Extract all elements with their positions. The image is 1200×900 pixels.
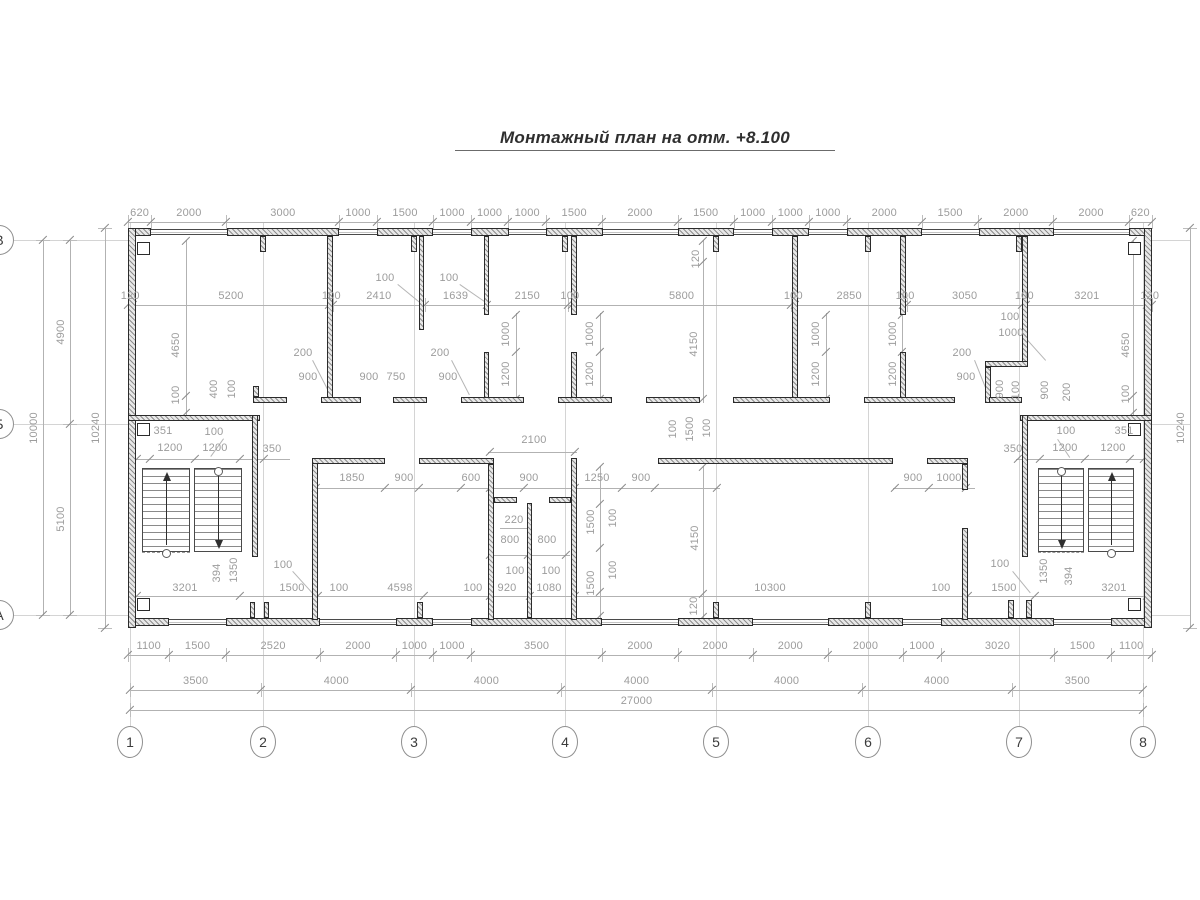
dimension-label: 1000 — [500, 321, 512, 346]
wall-segment — [678, 228, 734, 236]
dimension-label: 4650 — [170, 332, 182, 357]
row-axis-bubble: В — [0, 225, 14, 255]
wall-segment — [321, 397, 361, 403]
wall-segment — [250, 602, 255, 618]
wall-segment — [733, 397, 830, 403]
dimension-label: 1500 — [585, 570, 597, 595]
wall-segment — [253, 397, 287, 403]
dimension-label: 1000 — [515, 207, 540, 219]
dimension-chain-line — [130, 710, 1143, 711]
wall-segment — [411, 236, 417, 252]
wall-segment — [327, 236, 333, 403]
wall-segment — [713, 236, 719, 252]
dimension-label: 2520 — [260, 640, 285, 652]
dimension-label: 1000 — [778, 207, 803, 219]
dimension-label: 1250 — [584, 472, 609, 484]
dimension-label: 100 — [560, 290, 579, 302]
dimension-label: 900 — [1039, 381, 1051, 400]
dimension-line — [516, 313, 517, 403]
dimension-label: 1000 — [936, 472, 961, 484]
dimension-label: 3201 — [1074, 290, 1099, 302]
dimension-label: 1000 — [815, 207, 840, 219]
dimension-line — [703, 240, 704, 403]
dimension-label: 100 — [1001, 311, 1020, 323]
stair-travel-line — [1111, 476, 1112, 545]
dimension-label: 1000 — [439, 640, 464, 652]
dimension-label: 2000 — [853, 640, 878, 652]
dimension-label: 100 — [542, 565, 561, 577]
dimension-label: 200 — [431, 347, 450, 359]
dimension-line — [600, 313, 601, 403]
dimension-label: 4900 — [55, 319, 67, 344]
dimension-label: 5100 — [55, 507, 67, 532]
dimension-label: 1850 — [339, 472, 364, 484]
dimension-label: 1100 — [136, 640, 160, 652]
dimension-label: 100 — [896, 290, 915, 302]
dimension-chain-line — [105, 228, 106, 628]
wall-niche — [137, 423, 150, 436]
dimension-label: 5200 — [218, 290, 243, 302]
column-axis-bubble: 1 — [117, 726, 143, 758]
dimension-chain-line — [128, 655, 1152, 656]
dimension-label: 351 — [1115, 425, 1134, 437]
dimension-label: 4000 — [924, 675, 949, 687]
dimension-label: 3201 — [1101, 582, 1126, 594]
dimension-label: 4000 — [474, 675, 499, 687]
dimension-label: 3000 — [270, 207, 295, 219]
window-symbol — [433, 619, 471, 625]
wall-segment — [900, 352, 906, 403]
dimension-label: 1500 — [684, 416, 696, 441]
dimension-label: 1200 — [202, 442, 227, 454]
dimension-label: 750 — [387, 371, 406, 383]
dimension-label: 2000 — [1003, 207, 1028, 219]
wall-segment — [484, 352, 489, 403]
dimension-label: 1500 — [693, 207, 718, 219]
wall-segment — [658, 458, 893, 464]
dimension-label: 100 — [376, 272, 395, 284]
wall-segment — [488, 464, 494, 620]
dimension-label: 100 — [205, 426, 224, 438]
dimension-label: 900 — [360, 371, 379, 383]
dimension-label: 1500 — [937, 207, 962, 219]
window-symbol — [433, 229, 471, 235]
dimension-label: 800 — [538, 534, 557, 546]
wall-segment — [713, 602, 719, 618]
dimension-label: 100 — [1120, 385, 1132, 404]
wall-segment — [546, 228, 603, 236]
dimension-label: 120 — [121, 290, 140, 302]
dimension-label: 200 — [1061, 383, 1073, 402]
dimension-label: 1500 — [585, 509, 597, 534]
wall-segment — [260, 236, 266, 252]
window-symbol — [509, 229, 546, 235]
dimension-label: 394 — [211, 564, 223, 583]
window-symbol — [903, 619, 941, 625]
dimension-label: 1500 — [991, 582, 1016, 594]
dimension-chain-line — [128, 222, 1152, 223]
dimension-chain-line — [130, 690, 1143, 691]
wall-segment — [962, 528, 968, 620]
wall-segment — [227, 228, 339, 236]
dimension-label: 120 — [690, 250, 702, 269]
dimension-label: 100 — [440, 272, 459, 284]
dimension-label: 3201 — [172, 582, 197, 594]
dimension-label: 220 — [505, 514, 524, 526]
column-axis-bubble: 8 — [1130, 726, 1156, 758]
dimension-line — [313, 488, 720, 489]
dimension-label: 2150 — [515, 290, 540, 302]
dimension-label: 900 — [299, 371, 318, 383]
dimension-label: 4000 — [774, 675, 799, 687]
dimension-chain-line — [128, 305, 1152, 306]
stair-travel-line — [1061, 476, 1062, 545]
dimension-label: 4000 — [324, 675, 349, 687]
wall-niche — [1128, 598, 1141, 611]
wall-segment — [772, 228, 809, 236]
window-symbol — [602, 619, 678, 625]
leader-line — [1027, 340, 1046, 361]
dimension-label: 200 — [294, 347, 313, 359]
dimension-label: 120 — [688, 597, 700, 616]
dimension-label: 3500 — [1065, 675, 1090, 687]
dimension-label: 2000 — [703, 640, 728, 652]
stair-direction-arrow — [1108, 472, 1116, 481]
dimension-label: 1000 — [439, 207, 464, 219]
dimension-label: 1200 — [1052, 442, 1077, 454]
dimension-label: 900 — [994, 380, 1006, 399]
dimension-label: 351 — [154, 425, 173, 437]
dimension-label: 100 — [607, 561, 619, 580]
wall-niche — [137, 598, 150, 611]
dimension-label: 1350 — [228, 557, 240, 582]
drawing-title: Монтажный план на отм. +8.100 — [455, 128, 835, 151]
row-axis-line — [1152, 615, 1190, 616]
wall-segment — [461, 397, 524, 403]
dimension-label: 1000 — [345, 207, 370, 219]
dimension-label: 1500 — [185, 640, 210, 652]
dimension-label: 1639 — [443, 290, 468, 302]
dimension-label: 100 — [170, 386, 182, 405]
wall-segment — [1026, 600, 1032, 618]
column-axis-bubble: 2 — [250, 726, 276, 758]
wall-segment — [396, 618, 433, 626]
wall-segment — [312, 458, 318, 620]
dimension-label: 2410 — [366, 290, 391, 302]
dimension-label: 900 — [395, 472, 414, 484]
wall-segment — [527, 503, 532, 618]
dimension-label: 2000 — [872, 207, 897, 219]
dimension-label: 5800 — [669, 290, 694, 302]
stair-direction-arrow — [215, 540, 223, 549]
dimension-label: 600 — [462, 472, 481, 484]
stair-travel-line — [166, 476, 167, 545]
wall-segment — [264, 602, 269, 618]
dimension-label: 100 — [1015, 290, 1034, 302]
dimension-chain-line — [1190, 228, 1191, 628]
dimension-label: 4650 — [1120, 332, 1132, 357]
dimension-label: 100 — [464, 582, 483, 594]
dimension-line — [600, 466, 601, 618]
dimension-label: 100 — [607, 509, 619, 528]
dimension-label: 920 — [498, 582, 517, 594]
wall-segment — [419, 458, 494, 464]
dimension-label: 2000 — [778, 640, 803, 652]
dimension-label: 900 — [520, 472, 539, 484]
dimension-label: 100 — [784, 290, 803, 302]
dimension-label: 2000 — [345, 640, 370, 652]
dimension-label: 1200 — [584, 361, 596, 386]
stair-direction-arrow — [163, 472, 171, 481]
dimension-label: 1000 — [810, 321, 822, 346]
dimension-label: 1000 — [402, 640, 427, 652]
dimension-label: 2000 — [1078, 207, 1103, 219]
dimension-label: 1100 — [1119, 640, 1143, 652]
wall-segment — [1144, 228, 1152, 628]
column-axis-bubble: 7 — [1006, 726, 1032, 758]
dimension-label: 4150 — [689, 525, 701, 550]
wall-segment — [828, 618, 903, 626]
wall-segment — [226, 618, 320, 626]
dimension-label: 1000 — [584, 321, 596, 346]
floor-plan-canvas: Монтажный план на отм. +8.100 6202000300… — [0, 0, 1200, 900]
wall-segment — [377, 228, 433, 236]
dimension-label: 1080 — [536, 582, 561, 594]
dimension-label: 2000 — [176, 207, 201, 219]
dimension-label: 2850 — [837, 290, 862, 302]
dimension-line — [136, 459, 290, 460]
dimension-label: 620 — [130, 207, 149, 219]
dimension-label: 350 — [1004, 443, 1023, 455]
dimension-chain-line — [43, 240, 44, 615]
window-symbol — [603, 229, 678, 235]
dimension-label: 1000 — [740, 207, 765, 219]
dimension-label: 900 — [632, 472, 651, 484]
dimension-label: 1000 — [998, 327, 1023, 339]
window-symbol — [922, 229, 979, 235]
dimension-label: 800 — [501, 534, 520, 546]
stair-start-circle — [1057, 467, 1066, 476]
dimension-label: 10300 — [754, 582, 786, 594]
wall-segment — [417, 602, 423, 618]
dimension-label: 10000 — [28, 412, 40, 444]
dimension-line — [136, 596, 1148, 597]
wall-segment — [393, 397, 427, 403]
dimension-line — [703, 466, 704, 618]
wall-segment — [678, 618, 753, 626]
dimension-label: 1000 — [909, 640, 934, 652]
dimension-label: 200 — [953, 347, 972, 359]
dimension-label: 1200 — [500, 361, 512, 386]
wall-segment — [571, 352, 577, 403]
dimension-label: 2000 — [627, 207, 652, 219]
wall-segment — [494, 497, 517, 503]
dimension-label: 100 — [330, 582, 349, 594]
dimension-label: 400 — [208, 380, 220, 399]
dimension-label: 1500 — [392, 207, 417, 219]
dimension-label: 10240 — [1175, 412, 1187, 444]
landing-break-line — [1038, 552, 1084, 553]
dimension-line — [488, 452, 577, 453]
dimension-label: 1500 — [1070, 640, 1095, 652]
dimension-line — [500, 528, 528, 529]
window-symbol — [169, 619, 226, 625]
wall-segment — [985, 361, 1028, 367]
leader-line — [397, 284, 420, 303]
window-symbol — [320, 619, 396, 625]
wall-segment — [962, 464, 968, 490]
wall-segment — [549, 497, 571, 503]
wall-segment — [792, 236, 798, 403]
dimension-label: 1000 — [887, 321, 899, 346]
window-symbol — [753, 619, 828, 625]
wall-segment — [128, 415, 260, 421]
dimension-label: 100 — [667, 420, 679, 439]
dimension-label: 4000 — [624, 675, 649, 687]
dimension-label: 3050 — [952, 290, 977, 302]
dimension-label: 350 — [263, 443, 282, 455]
dimension-label: 100 — [991, 558, 1010, 570]
dimension-label: 100 — [322, 290, 341, 302]
wall-segment — [1016, 236, 1022, 252]
window-symbol — [809, 229, 847, 235]
row-axis-bubble: А — [0, 600, 14, 630]
dimension-label: 4150 — [688, 331, 700, 356]
dimension-label: 394 — [1063, 567, 1075, 586]
dimension-label: 900 — [439, 371, 458, 383]
wall-segment — [1020, 415, 1152, 421]
dimension-label: 100 — [506, 565, 525, 577]
dimension-label: 1000 — [477, 207, 502, 219]
stair-start-circle — [214, 467, 223, 476]
window-symbol — [151, 229, 227, 235]
dimension-line — [826, 313, 827, 403]
dimension-label: 100 — [226, 380, 238, 399]
stair-direction-arrow — [1058, 540, 1066, 549]
dimension-label: 1200 — [1100, 442, 1125, 454]
dimension-label: 27000 — [621, 695, 653, 707]
dimension-label: 2000 — [627, 640, 652, 652]
column-axis-bubble: 3 — [401, 726, 427, 758]
dimension-label: 1350 — [1038, 558, 1050, 583]
dimension-label: 1200 — [887, 361, 899, 386]
stair-travel-line — [218, 476, 219, 545]
wall-segment — [900, 236, 906, 315]
wall-segment — [562, 236, 568, 252]
dimension-label: 10240 — [90, 412, 102, 444]
dimension-label: 100 — [932, 582, 951, 594]
window-symbol — [1054, 619, 1111, 625]
dimension-label: 100 — [1010, 381, 1022, 400]
dimension-label: 2100 — [521, 434, 546, 446]
wall-segment — [471, 228, 509, 236]
stair-start-circle — [1107, 549, 1116, 558]
dimension-label: 900 — [957, 371, 976, 383]
dimension-label: 100 — [701, 419, 713, 438]
dimension-label: 3500 — [183, 675, 208, 687]
dimension-label: 1500 — [279, 582, 304, 594]
dimension-label: 900 — [904, 472, 923, 484]
wall-segment — [865, 602, 871, 618]
dimension-label: 100 — [274, 559, 293, 571]
wall-segment — [484, 236, 489, 315]
window-symbol — [1054, 229, 1129, 235]
wall-segment — [128, 228, 136, 628]
window-symbol — [734, 229, 772, 235]
wall-segment — [941, 618, 1054, 626]
dimension-label: 100 — [1057, 425, 1076, 437]
wall-niche — [1128, 242, 1141, 255]
wall-segment — [1008, 600, 1014, 618]
wall-segment — [312, 458, 385, 464]
dimension-chain-line — [70, 240, 71, 615]
dimension-label: 120 — [1140, 290, 1159, 302]
wall-segment — [865, 236, 871, 252]
dimension-label: 1200 — [157, 442, 182, 454]
dimension-line — [186, 240, 187, 416]
row-axis-line — [1152, 240, 1190, 241]
column-axis-bubble: 5 — [703, 726, 729, 758]
wall-segment — [571, 236, 577, 315]
dimension-label: 1200 — [810, 361, 822, 386]
column-axis-bubble: 6 — [855, 726, 881, 758]
wall-segment — [979, 228, 1054, 236]
wall-segment — [847, 228, 922, 236]
wall-segment — [558, 397, 612, 403]
dimension-label: 4598 — [387, 582, 412, 594]
dimension-label: 620 — [1131, 207, 1150, 219]
dimension-line — [1133, 240, 1134, 416]
window-symbol — [339, 229, 377, 235]
row-axis-bubble: Б — [0, 409, 14, 439]
wall-segment — [419, 236, 424, 330]
wall-segment — [1022, 415, 1028, 557]
wall-segment — [864, 397, 955, 403]
wall-segment — [646, 397, 700, 403]
wall-segment — [252, 415, 258, 557]
dimension-label: 3500 — [524, 640, 549, 652]
dimension-label: 3020 — [985, 640, 1010, 652]
dimension-label: 1500 — [562, 207, 587, 219]
stair-start-circle — [162, 549, 171, 558]
wall-segment — [253, 386, 259, 397]
wall-niche — [137, 242, 150, 255]
wall-segment — [571, 458, 577, 620]
column-axis-bubble: 4 — [552, 726, 578, 758]
